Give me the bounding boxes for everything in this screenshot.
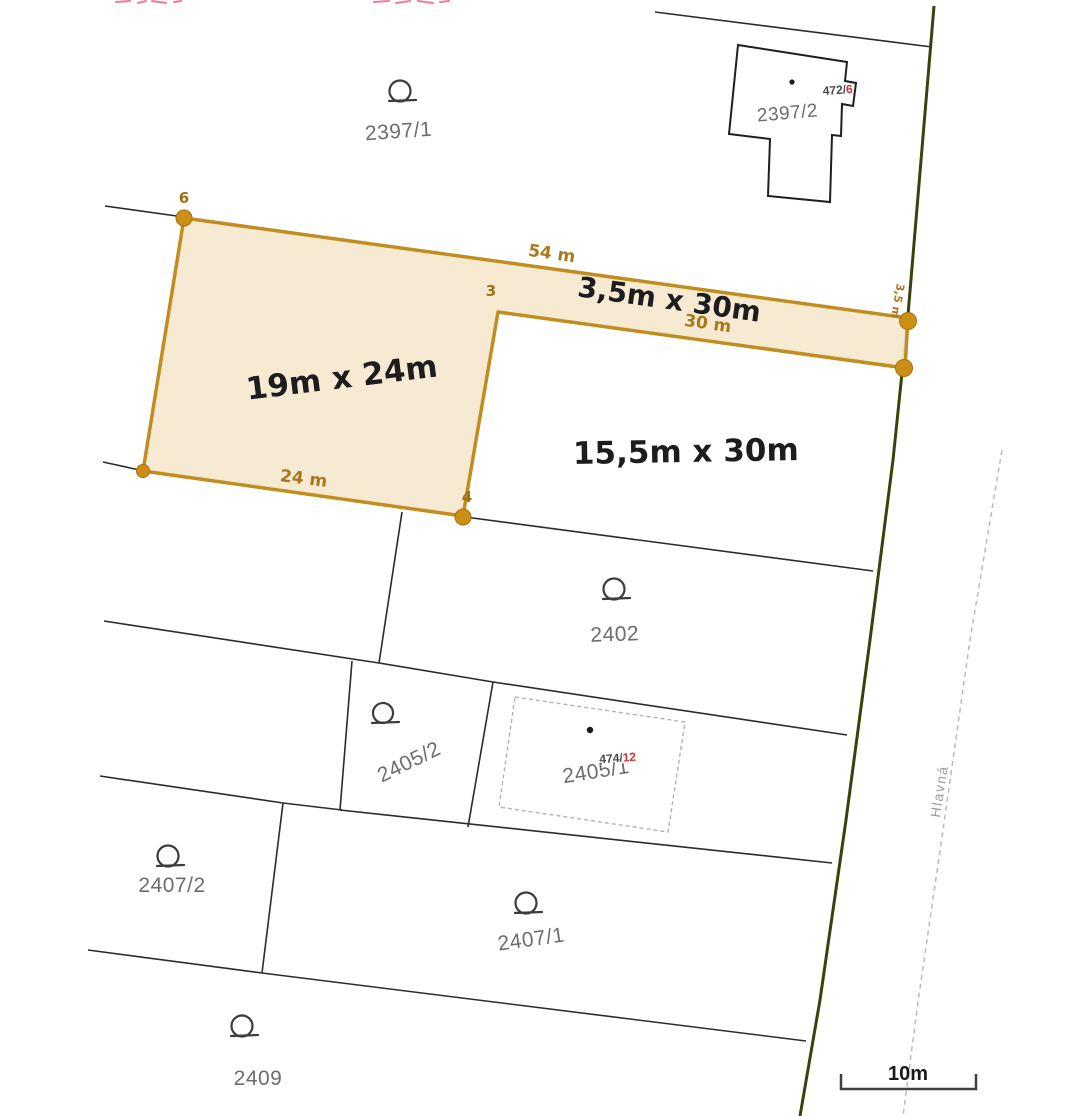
landuse-symbol-2407-1 (515, 893, 542, 914)
parcel-label-2409: 2409 (234, 1067, 283, 1090)
building-number-red: 12 (622, 750, 637, 765)
parcel-boundary-line (104, 621, 379, 663)
parcel-boundary-line (262, 803, 283, 973)
scale-bar: 10m (841, 1063, 976, 1089)
edge-length-label-top: 54 m (527, 241, 577, 267)
parcel-boundary-line (468, 682, 493, 827)
landuse-symbol-2397-1 (389, 81, 416, 102)
building-number-prefix: 474/ (599, 751, 624, 767)
landuse-symbol-2405-2 (372, 703, 399, 723)
parcel-label-2402: 2402 (590, 622, 639, 647)
scale-bar-label: 10m (888, 1063, 928, 1085)
cadastral-map-canvas[interactable]: Hlavná 6 3 4 54 m 30 m 24 m 3,5 m 19m x … (0, 0, 1080, 1116)
building-center-dot (587, 727, 593, 733)
parcel-label-2407-1: 2407/1 (496, 923, 566, 955)
road-centerline (903, 450, 1002, 1116)
building-number-472-6: 472/6 (822, 82, 853, 98)
parcel-label-2405-2: 2405/2 (374, 737, 445, 787)
building-center-dot (789, 79, 794, 84)
map-svg: Hlavná 6 3 4 54 m 30 m 24 m 3,5 m 19m x … (0, 0, 1080, 1116)
vertex-dot-4 (455, 509, 471, 525)
parcel-boundary-line (655, 12, 932, 47)
dimension-annotation-side: 15,5m x 30m (573, 432, 799, 472)
parcel-boundary-line (379, 663, 847, 735)
vertex-dot (896, 360, 913, 377)
parcel-boundary-line (88, 950, 806, 1041)
parcel-boundary-line (340, 661, 352, 810)
vertex-number-6: 6 (179, 189, 189, 207)
vertex-number-3: 3 (486, 282, 496, 300)
building-number-prefix: 472/ (822, 82, 847, 98)
building-number-red: 6 (846, 82, 854, 96)
clipped-annotation-fragments (116, 1, 449, 3)
parcel-boundary-line (465, 517, 873, 571)
vertex-dot-6 (176, 210, 192, 226)
building-number-474-12: 474/12 (599, 750, 637, 767)
landuse-symbol-2402 (603, 579, 630, 600)
parcel-boundary-line (379, 512, 402, 663)
parcel-label-2397-1: 2397/1 (364, 118, 433, 146)
highlighted-parcel[interactable] (143, 218, 908, 516)
landuse-symbol-2407-2 (157, 846, 184, 867)
parcel-boundary-line (105, 206, 184, 217)
parcel-boundary-line (340, 810, 832, 863)
landuse-symbol-2409 (231, 1016, 258, 1037)
vertex-dot (137, 465, 150, 478)
parcel-label-2407-2: 2407/2 (138, 874, 205, 897)
road-name-label: Hlavná (927, 764, 951, 818)
vertex-number-4: 4 (462, 488, 472, 506)
parcel-boundary-line (100, 776, 342, 810)
